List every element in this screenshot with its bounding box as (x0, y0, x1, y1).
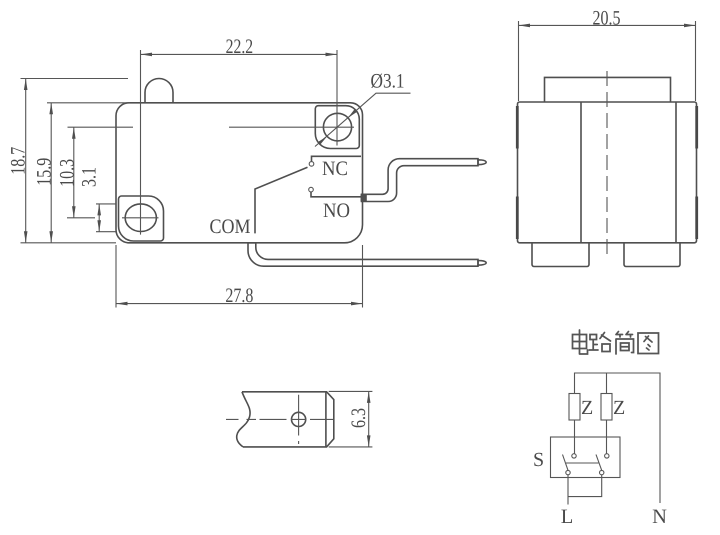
svg-text:27.8: 27.8 (225, 285, 253, 307)
svg-text:3.1: 3.1 (78, 167, 100, 187)
svg-text:15.9: 15.9 (34, 158, 56, 186)
svg-text:18.7: 18.7 (8, 147, 30, 175)
svg-text:22.2: 22.2 (226, 36, 254, 58)
svg-text:Ø3.1: Ø3.1 (371, 70, 405, 92)
svg-text:Z: Z (581, 397, 593, 419)
svg-text:10.3: 10.3 (57, 159, 79, 187)
svg-text:N: N (652, 506, 667, 528)
svg-text:NO: NO (323, 200, 350, 222)
svg-text:20.5: 20.5 (593, 7, 621, 29)
svg-text:L: L (561, 506, 574, 528)
svg-text:Z: Z (613, 397, 625, 419)
svg-text:S: S (533, 449, 544, 471)
svg-text:NC: NC (322, 158, 348, 180)
svg-text:6.3: 6.3 (348, 408, 370, 428)
svg-text:COM: COM (210, 216, 251, 238)
